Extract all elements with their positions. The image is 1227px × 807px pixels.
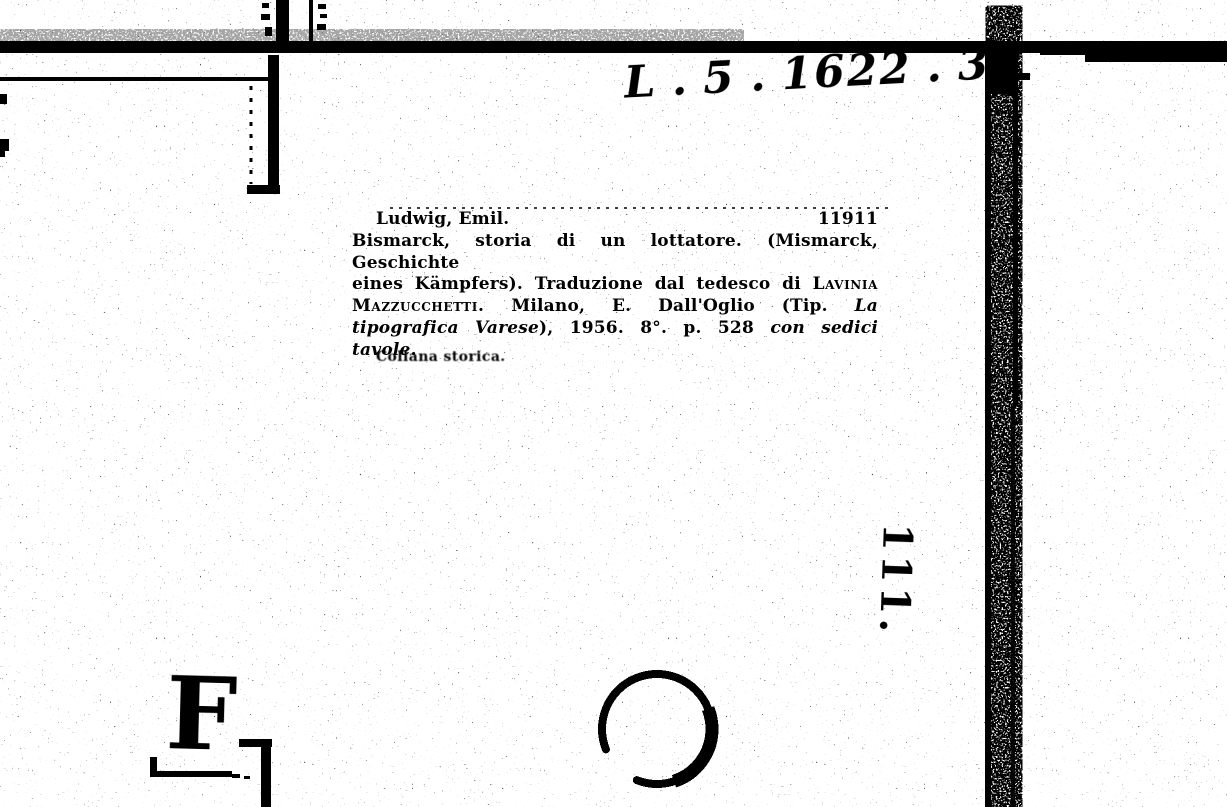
left-edge-blobs — [0, 94, 9, 157]
translator-name: Lavinia — [813, 274, 878, 294]
entry-heading: Ludwig, Emil. 11911 — [352, 209, 878, 231]
entry-text: ), 1956. 8°. p. 528 — [539, 318, 770, 338]
margin-number-rotated: 111. — [866, 519, 926, 641]
top-bar-scratches — [0, 30, 620, 42]
top-vertical-marks — [261, 0, 327, 49]
entry-line: Bismarck, storia di un lottatore. (Misma… — [352, 231, 878, 275]
entry-text: Bismarck, storia di un lottatore. (Misma… — [352, 231, 878, 273]
catalog-entry: Ludwig, Emil. 11911 Bismarck, storia di … — [352, 209, 878, 362]
series-note: Collana storica. — [376, 349, 506, 365]
entry-line: Mazzucchetti. Milano, E. Dall'Oglio (Tip… — [352, 296, 878, 318]
card-corner-top-left — [0, 55, 280, 194]
entry-line: eines Kämpfers). Traduzione dal tedesco … — [352, 274, 878, 296]
punch-hole-ring — [602, 674, 712, 784]
entry-text-italic: con sedici — [770, 318, 878, 338]
entry-text-italic: La — [855, 296, 878, 316]
stamp-letter-f: F — [165, 663, 239, 765]
entry-line: tipografica Varese), 1956. 8°. p. 528 co… — [352, 318, 878, 340]
author-name: Ludwig, Emil. — [376, 209, 509, 231]
top-scan-bar — [0, 41, 1227, 62]
translator-surname: Mazzucchetti. — [352, 296, 484, 316]
entry-number: 11911 — [818, 209, 878, 231]
entry-text: eines Kämpfers). Traduzione dal tedesco … — [352, 274, 813, 294]
printer-name-italic: tipografica Varese — [352, 318, 539, 338]
shelfmark-handwritten: L . 5 . 1622 . 3 — [623, 38, 992, 108]
scanned-catalog-card: L . 5 . 1622 . 3 Ludwig, Emil. 11911 Bis… — [0, 0, 1227, 807]
card-corner-bottom-mid — [239, 739, 272, 807]
entry-text: Milano, E. Dall'Oglio (Tip. — [484, 296, 854, 316]
card-edge-shadow-band — [985, 44, 1030, 807]
